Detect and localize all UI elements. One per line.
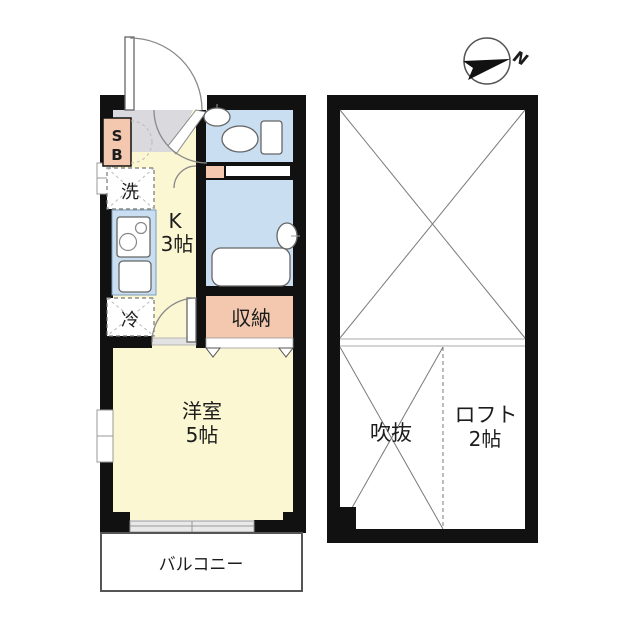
toilet-tank bbox=[261, 121, 282, 154]
void-label: 吹抜 bbox=[370, 421, 412, 445]
kitchen-sink bbox=[119, 261, 151, 292]
kitchen-counter bbox=[112, 210, 156, 295]
western-room-label-line2: 5帖 bbox=[186, 423, 219, 447]
washer-label: 洗 bbox=[121, 182, 139, 203]
right-unit-wall-right bbox=[525, 95, 538, 543]
right-unit-wall-left bbox=[327, 95, 340, 543]
wall-bottom-right-pillar bbox=[283, 512, 306, 533]
toilet-door-sill bbox=[206, 166, 224, 178]
right-unit-wall-top bbox=[327, 95, 538, 110]
floor-plan-drawing: S B 洗 冷 K 3帖 bbox=[0, 0, 640, 640]
kitchen-label-line2: 3帖 bbox=[161, 232, 194, 256]
balcony-label: バルコニー bbox=[159, 555, 244, 575]
window-left-western-room bbox=[97, 410, 113, 462]
wall-bath-storage bbox=[196, 286, 293, 296]
entrance-door-leaf bbox=[125, 37, 134, 110]
fridge-space: 冷 bbox=[107, 298, 154, 336]
compass: N bbox=[463, 38, 531, 84]
wall-kitchen-divider bbox=[196, 110, 206, 348]
toilet-bowl bbox=[222, 126, 258, 152]
loft-label-line2: 2帖 bbox=[469, 427, 502, 451]
floor-plan-page: S B 洗 冷 K 3帖 bbox=[0, 0, 640, 640]
wall-top-right-segment bbox=[207, 95, 306, 110]
window-toilet-bath-band bbox=[226, 166, 290, 176]
wall-kitchen-bottom bbox=[100, 336, 152, 348]
kitchen-label-line1: K bbox=[168, 209, 182, 233]
compass-north-label: N bbox=[510, 47, 531, 70]
washer-space: 洗 bbox=[107, 168, 154, 209]
loft-level-floor bbox=[340, 110, 525, 529]
western-room-label-line1: 洋室 bbox=[182, 399, 222, 423]
balcony: バルコニー bbox=[101, 533, 302, 591]
window-balcony-sliding-door bbox=[130, 521, 254, 532]
left-unit: S B 洗 冷 K 3帖 bbox=[97, 37, 306, 591]
shoe-box-label-line1: S bbox=[112, 127, 123, 145]
bathtub bbox=[212, 248, 290, 286]
storage-label: 収納 bbox=[231, 306, 271, 330]
right-unit-corner-pillar bbox=[333, 507, 356, 529]
right-unit: 吹抜 ロフト 2帖 bbox=[327, 95, 538, 543]
shoe-box-label-line2: B bbox=[111, 146, 122, 164]
wall-right bbox=[293, 95, 306, 533]
right-unit-wall-bottom bbox=[327, 529, 538, 543]
loft-label-line1: ロフト bbox=[455, 403, 518, 427]
stove-burner-large bbox=[120, 234, 137, 251]
toilet-hand-basin bbox=[204, 108, 230, 126]
wall-bottom-left-pillar bbox=[100, 512, 130, 533]
kitchen-door-leaf bbox=[187, 298, 196, 342]
entrance-door-swing-arc bbox=[130, 38, 202, 110]
fridge-label: 冷 bbox=[121, 310, 139, 331]
storage-folding-door-band bbox=[206, 338, 293, 348]
stove-burner-small bbox=[136, 223, 147, 234]
